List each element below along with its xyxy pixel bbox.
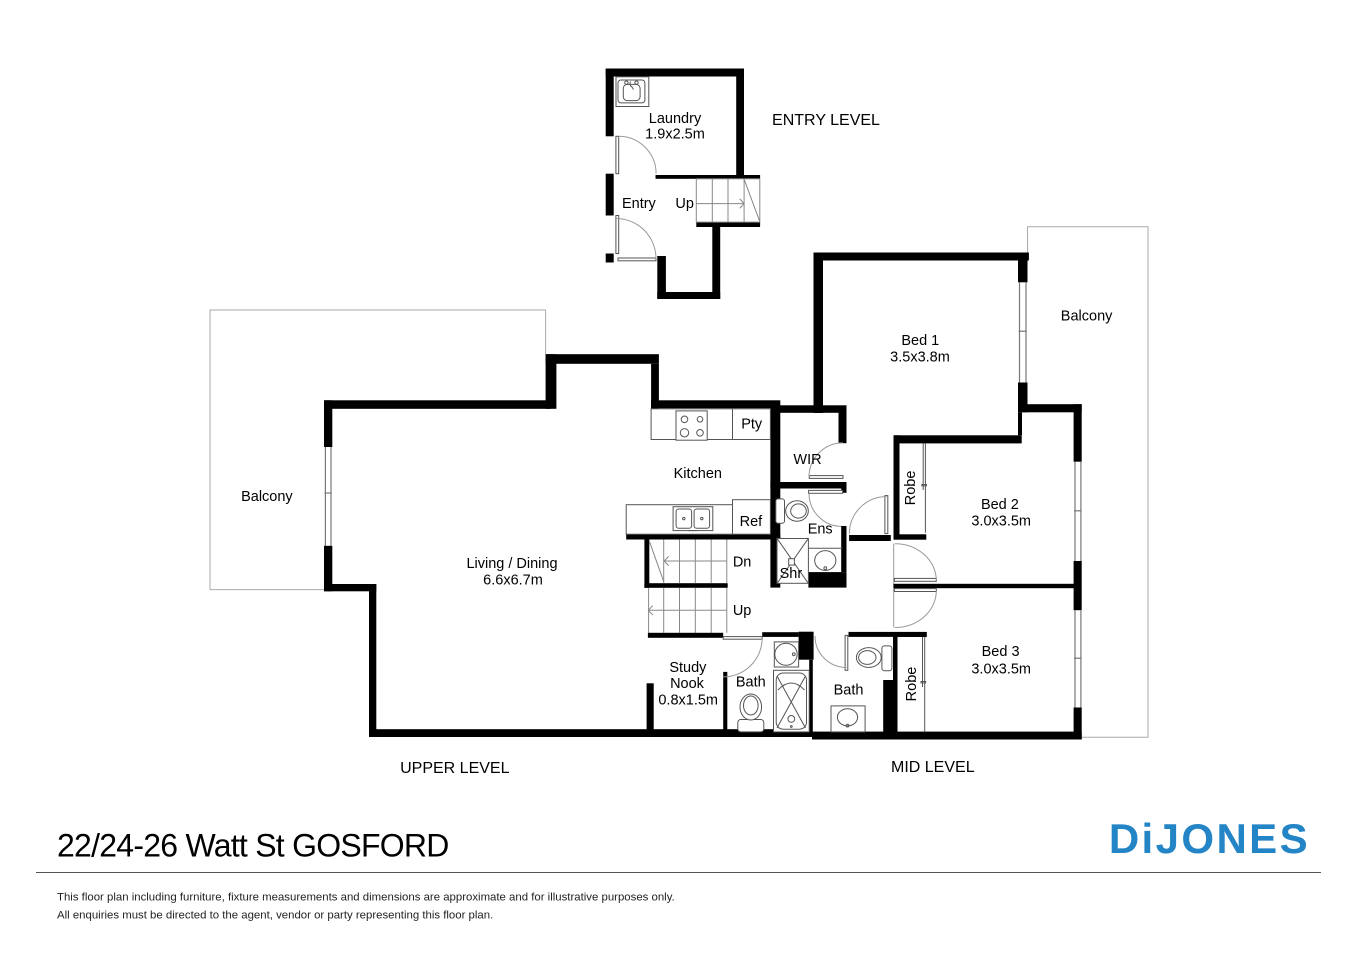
svg-text:Study: Study — [669, 660, 707, 676]
svg-text:Bath: Bath — [736, 675, 766, 691]
svg-text:Bath: Bath — [834, 683, 864, 699]
svg-text:3.0x3.5m: 3.0x3.5m — [971, 514, 1031, 530]
svg-text:ENTRY LEVEL: ENTRY LEVEL — [772, 112, 880, 129]
svg-text:Dn: Dn — [733, 554, 752, 570]
svg-text:All enquiries must be directed: All enquiries must be directed to the ag… — [57, 910, 493, 922]
svg-text:Nook: Nook — [670, 676, 705, 692]
svg-text:Living / Dining: Living / Dining — [466, 556, 557, 572]
svg-text:Shr: Shr — [780, 566, 803, 582]
svg-text:0.8x1.5m: 0.8x1.5m — [658, 692, 718, 708]
svg-text:Pty: Pty — [741, 417, 763, 433]
svg-text:Kitchen: Kitchen — [674, 466, 722, 482]
svg-text:3.5x3.8m: 3.5x3.8m — [890, 349, 950, 365]
svg-text:DiJONES: DiJONES — [1109, 815, 1310, 862]
svg-text:Ens: Ens — [808, 522, 833, 538]
svg-text:Up: Up — [733, 603, 752, 619]
svg-text:MID LEVEL: MID LEVEL — [891, 759, 975, 776]
svg-text:WIR: WIR — [793, 452, 821, 468]
svg-text:Robe: Robe — [903, 471, 919, 506]
svg-text:Ref: Ref — [740, 514, 764, 530]
svg-text:Entry: Entry — [622, 196, 657, 212]
svg-text:Balcony: Balcony — [1061, 309, 1113, 325]
svg-text:Robe: Robe — [904, 667, 920, 702]
svg-text:UPPER LEVEL: UPPER LEVEL — [400, 760, 509, 777]
svg-text:Laundry: Laundry — [649, 111, 702, 127]
svg-text:22/24-26 Watt St GOSFORD: 22/24-26 Watt St GOSFORD — [57, 828, 449, 864]
svg-text:Bed 2: Bed 2 — [981, 497, 1019, 513]
svg-text:This floor plan including furn: This floor plan including furniture, fix… — [57, 892, 675, 904]
svg-text:Bed 1: Bed 1 — [901, 333, 939, 349]
svg-text:3.0x3.5m: 3.0x3.5m — [971, 662, 1031, 678]
svg-text:Up: Up — [675, 196, 694, 212]
svg-text:Bed 3: Bed 3 — [982, 644, 1020, 660]
svg-text:6.6x6.7m: 6.6x6.7m — [483, 573, 543, 589]
svg-text:1.9x2.5m: 1.9x2.5m — [645, 126, 705, 142]
svg-text:Balcony: Balcony — [241, 489, 293, 505]
